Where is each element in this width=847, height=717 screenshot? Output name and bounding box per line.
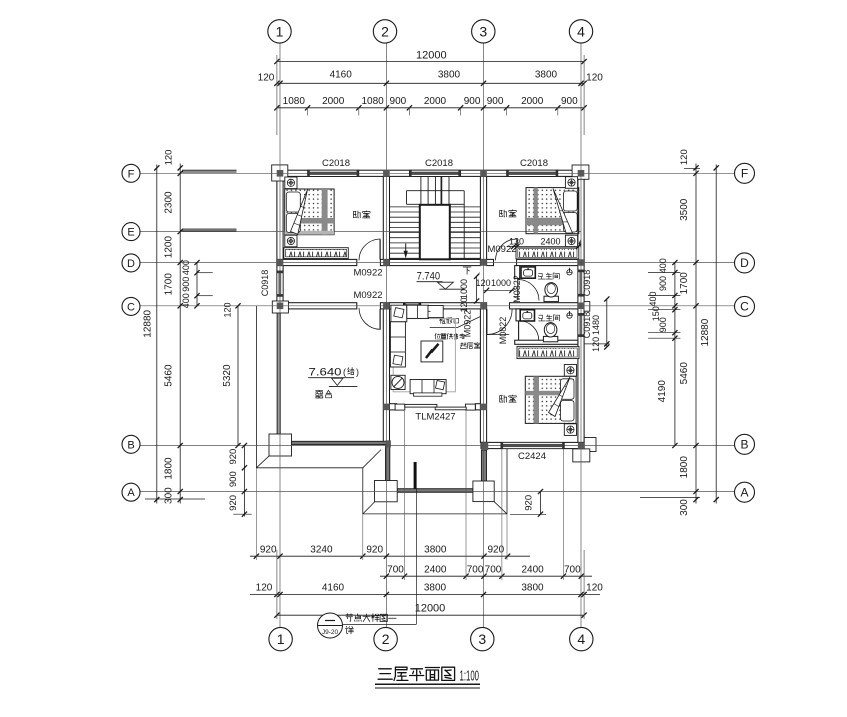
svg-text:5460: 5460 <box>679 362 690 385</box>
svg-text:1700: 1700 <box>163 273 174 296</box>
svg-text:12880: 12880 <box>700 318 711 346</box>
svg-text:12880: 12880 <box>142 309 153 337</box>
svg-text:TLM2427: TLM2427 <box>415 412 455 423</box>
svg-text:120: 120 <box>586 583 603 594</box>
svg-text:4160: 4160 <box>322 583 345 594</box>
svg-text:(: ( <box>343 367 346 377</box>
svg-text:3240: 3240 <box>310 545 333 556</box>
svg-text:130: 130 <box>509 236 524 246</box>
svg-text:1800: 1800 <box>679 456 690 479</box>
svg-text:F: F <box>741 167 748 181</box>
svg-text:900: 900 <box>658 276 668 291</box>
svg-text:900: 900 <box>228 471 239 487</box>
svg-text:7.740: 7.740 <box>417 271 441 283</box>
svg-text:B: B <box>740 438 748 452</box>
svg-text:M0922: M0922 <box>353 268 382 279</box>
svg-text:2000: 2000 <box>424 96 447 107</box>
svg-text:700: 700 <box>485 565 502 576</box>
svg-text:2: 2 <box>381 23 389 39</box>
svg-text:C2018: C2018 <box>520 158 548 169</box>
svg-text:D: D <box>740 256 749 270</box>
svg-text:300: 300 <box>679 499 690 516</box>
svg-text:B: B <box>127 439 134 451</box>
svg-text:2400: 2400 <box>540 236 560 246</box>
svg-text:920: 920 <box>523 495 534 511</box>
svg-text:3: 3 <box>478 631 486 647</box>
svg-text:3500: 3500 <box>679 198 690 221</box>
svg-text:3800: 3800 <box>424 545 447 556</box>
svg-text:2300: 2300 <box>163 191 174 214</box>
svg-text:120: 120 <box>258 72 275 83</box>
svg-text:C2018: C2018 <box>322 158 350 169</box>
svg-text:4160: 4160 <box>330 70 353 81</box>
svg-text:): ) <box>356 367 359 377</box>
svg-text:1: 1 <box>277 631 285 647</box>
svg-text:A: A <box>740 486 748 500</box>
svg-text:1:100: 1:100 <box>460 669 480 685</box>
svg-text:2: 2 <box>382 631 390 647</box>
svg-text:120: 120 <box>475 278 490 288</box>
svg-text:4: 4 <box>577 631 585 647</box>
svg-text:1000: 1000 <box>459 279 469 299</box>
svg-text:400: 400 <box>181 260 191 275</box>
svg-text:C2018: C2018 <box>425 158 453 169</box>
svg-text:2400: 2400 <box>521 565 544 576</box>
svg-text:3800: 3800 <box>438 70 461 81</box>
svg-text:120: 120 <box>586 72 603 83</box>
svg-text:120: 120 <box>222 302 232 317</box>
svg-text:4: 4 <box>577 23 585 39</box>
svg-text:1200: 1200 <box>163 236 174 259</box>
svg-text:J9-20: J9-20 <box>322 629 339 636</box>
svg-text:C2424: C2424 <box>518 451 546 462</box>
svg-text:C: C <box>740 300 749 314</box>
svg-text:900: 900 <box>561 96 578 107</box>
svg-text:E: E <box>127 227 134 239</box>
svg-text:3800: 3800 <box>424 583 447 594</box>
svg-text:5460: 5460 <box>163 364 174 387</box>
svg-text:120: 120 <box>591 337 601 352</box>
svg-text:3800: 3800 <box>535 70 558 81</box>
svg-text:C0918: C0918 <box>260 270 270 297</box>
svg-text:120: 120 <box>679 149 690 165</box>
svg-text:C: C <box>127 301 135 313</box>
svg-text:900: 900 <box>658 317 668 332</box>
svg-text:700: 700 <box>467 565 484 576</box>
svg-text:120: 120 <box>164 150 175 166</box>
svg-text:120: 120 <box>459 297 469 312</box>
svg-text:1: 1 <box>276 23 284 39</box>
svg-text:1080: 1080 <box>361 96 384 107</box>
svg-text:400: 400 <box>658 258 668 273</box>
svg-text:1800: 1800 <box>163 457 174 480</box>
svg-text:400: 400 <box>648 291 658 306</box>
svg-text:7.640: 7.640 <box>309 367 342 379</box>
svg-text:700: 700 <box>387 565 404 576</box>
svg-text:5320: 5320 <box>222 364 233 387</box>
svg-text:12000: 12000 <box>415 603 446 615</box>
svg-text:12000: 12000 <box>416 50 447 62</box>
svg-text:900: 900 <box>487 96 504 107</box>
svg-text:700: 700 <box>564 565 581 576</box>
svg-text:900: 900 <box>464 96 481 107</box>
svg-text:2000: 2000 <box>521 96 544 107</box>
svg-text:D: D <box>127 258 135 270</box>
svg-text:3800: 3800 <box>521 583 544 594</box>
svg-text:900: 900 <box>181 277 191 292</box>
svg-text:1700: 1700 <box>679 272 690 295</box>
svg-text:300: 300 <box>163 487 174 504</box>
svg-text:1080: 1080 <box>283 96 306 107</box>
svg-text:3: 3 <box>479 23 487 39</box>
svg-text:120: 120 <box>256 583 273 594</box>
svg-text:4190: 4190 <box>657 380 668 403</box>
svg-text:920: 920 <box>228 495 239 511</box>
svg-text:900: 900 <box>390 96 407 107</box>
svg-text:C0918: C0918 <box>582 270 592 297</box>
svg-text:M0922: M0922 <box>463 310 473 338</box>
svg-text:1000: 1000 <box>491 278 511 288</box>
svg-text:920: 920 <box>228 449 239 465</box>
svg-text:1480: 1480 <box>591 315 601 335</box>
svg-text:M0922: M0922 <box>353 290 382 301</box>
svg-text:A: A <box>127 487 135 499</box>
svg-text:2400: 2400 <box>424 565 447 576</box>
svg-text:F: F <box>128 168 135 180</box>
svg-text:920: 920 <box>260 545 277 556</box>
svg-text:M0822: M0822 <box>498 317 508 345</box>
svg-text:920: 920 <box>366 545 383 556</box>
svg-text:2000: 2000 <box>322 96 345 107</box>
svg-text:400: 400 <box>181 293 191 308</box>
